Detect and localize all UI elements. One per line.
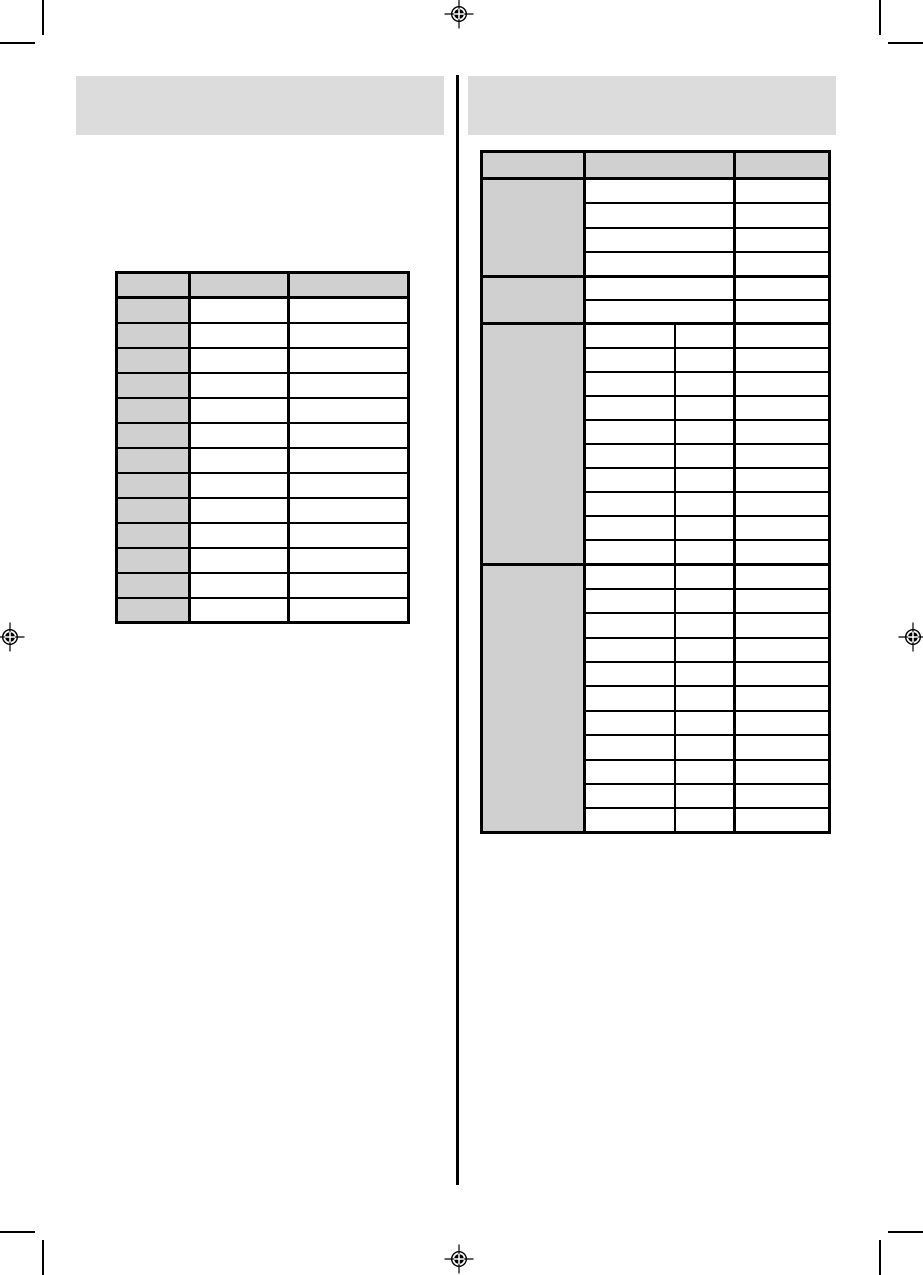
right-table-group-label-cell [482,324,585,565]
right-table-value-cell [735,540,830,564]
trim-mark-bottom-right-horizontal [888,1231,923,1233]
right-table-value-cell [675,348,735,372]
right-table-value-cell [675,589,735,613]
left-table-value-cell [190,498,289,523]
registration-mark-icon [0,622,25,652]
left-table-value-cell [289,448,409,473]
left-table-row [117,448,409,473]
left-table-value-cell [190,548,289,573]
left-table-label-cell [117,473,190,498]
trim-mark-bottom-left-vertical [42,1240,44,1275]
left-table-value-cell [190,523,289,548]
left-table-label-cell [117,598,190,623]
right-table-value-cell [585,396,675,420]
right-table-value-cell [585,735,675,759]
right-table-value-cell [675,711,735,735]
right-table-header-cell [735,152,830,179]
right-table-value-cell [585,808,675,832]
right-table-value-cell [585,468,675,492]
right-table-value-cell [585,760,675,784]
right-table-value-cell [675,760,735,784]
left-table-row [117,423,409,448]
left-table-label-cell [117,498,190,523]
trim-mark-bottom-left-horizontal [0,1231,35,1233]
left-table-row [117,523,409,548]
right-table-value-cell [675,638,735,662]
right-table-value-cell [735,396,830,420]
right-table-value-cell [585,179,735,204]
right-table-value-cell [675,492,735,516]
right-table-value-cell [735,492,830,516]
right-table-header-cell [585,152,735,179]
right-table-value-cell [735,348,830,372]
right-table-value-cell [585,348,675,372]
left-table-header-cell [190,273,289,298]
right-table-header-cell [482,152,585,179]
right-table-value-cell [585,711,675,735]
right-table-value-cell [735,735,830,759]
right-table-value-cell [675,396,735,420]
left-table-row [117,348,409,373]
left-table-label-cell [117,573,190,598]
left-table-label-cell [117,523,190,548]
right-table-value-cell [735,564,830,588]
left-table-label-cell [117,423,190,448]
right-table-value-cell [585,372,675,396]
right-table-value-cell [585,638,675,662]
left-table-label-cell [117,398,190,423]
right-table-value-cell [675,372,735,396]
left-table-value-cell [190,298,289,323]
right-table-value-cell [675,564,735,588]
left-table-row [117,298,409,323]
left-table-value-cell [289,323,409,348]
right-section-header-bar [468,76,836,135]
left-table-label-cell [117,298,190,323]
right-table-value-cell [585,324,675,348]
right-table-value-cell [735,638,830,662]
right-table-value-cell [735,420,830,444]
right-table-row [482,564,830,588]
left-table-value-cell [289,298,409,323]
left-table-value-cell [190,473,289,498]
right-table-group-label-cell [482,179,585,277]
right-table-value-cell [585,662,675,686]
left-table-row [117,598,409,623]
right-table-value-cell [735,179,830,204]
left-table-value-cell [289,348,409,373]
registration-mark-icon [444,1244,474,1274]
left-section-header-bar [76,76,444,135]
left-table-label-cell [117,323,190,348]
left-table-value-cell [289,498,409,523]
left-table-row [117,573,409,598]
right-table-value-cell [735,444,830,468]
left-table-row [117,473,409,498]
left-table-label-cell [117,548,190,573]
left-table-header-cell [117,273,190,298]
right-table-value-cell [585,228,735,253]
right-table-value-cell [585,564,675,588]
right-table-value-cell [735,516,830,540]
left-table-value-cell [289,473,409,498]
left-table-value-cell [190,323,289,348]
left-table-value-cell [190,423,289,448]
right-table-row [482,277,830,301]
registration-mark-icon [444,0,474,29]
left-table-value-cell [289,598,409,623]
left-table-value-cell [289,523,409,548]
right-table-value-cell [735,252,830,277]
left-table-value-cell [190,598,289,623]
right-table-value-cell [735,372,830,396]
right-table-value-cell [675,613,735,637]
right-table-value-cell [735,760,830,784]
right-table-group-label-cell [482,564,585,832]
left-table [115,271,410,624]
right-table-value-cell [675,662,735,686]
right-table-header-row [482,152,830,179]
trim-mark-bottom-right-vertical [879,1240,881,1275]
right-table-value-cell [675,444,735,468]
right-table-value-cell [735,324,830,348]
right-table-row [482,179,830,204]
right-table-value-cell [675,324,735,348]
right-table-value-cell [585,252,735,277]
left-table-row [117,373,409,398]
right-table-value-cell [735,589,830,613]
trim-mark-top-left-vertical [42,0,44,35]
right-table-value-cell [675,516,735,540]
left-table-label-cell [117,373,190,398]
registration-mark-icon [898,622,923,652]
right-table-value-cell [585,203,735,228]
right-table-value-cell [585,589,675,613]
left-table-label-cell [117,448,190,473]
right-table-value-cell [585,277,735,301]
left-table-row [117,548,409,573]
right-table-group-label-cell [482,277,585,324]
right-table-value-cell [675,420,735,444]
left-table-value-cell [190,398,289,423]
right-table-value-cell [675,468,735,492]
left-table-row [117,323,409,348]
right-table-value-cell [675,784,735,808]
left-table-value-cell [190,373,289,398]
left-table-label-cell [117,348,190,373]
right-table-value-cell [735,711,830,735]
right-table-value-cell [585,784,675,808]
right-table-value-cell [585,444,675,468]
trim-mark-top-right-horizontal [888,42,923,44]
left-table-value-cell [190,348,289,373]
right-table-value-cell [735,613,830,637]
right-table-value-cell [735,277,830,301]
document-page [0,0,923,1275]
right-table-value-cell [675,686,735,710]
left-table-header-cell [289,273,409,298]
left-table-value-cell [190,448,289,473]
left-table-row [117,398,409,423]
left-table-value-cell [289,573,409,598]
right-table-value-cell [735,468,830,492]
right-table-value-cell [735,808,830,832]
right-table [480,150,831,834]
right-table-value-cell [585,516,675,540]
right-table-value-cell [735,300,830,324]
left-table-value-cell [190,573,289,598]
right-table-value-cell [675,735,735,759]
left-table-row [117,498,409,523]
left-table-value-cell [289,423,409,448]
right-table-value-cell [585,613,675,637]
trim-mark-top-left-horizontal [0,42,35,44]
right-table-value-cell [585,300,735,324]
trim-mark-top-right-vertical [879,0,881,35]
right-table-value-cell [735,784,830,808]
right-table-value-cell [735,686,830,710]
right-table-value-cell [675,808,735,832]
right-table-row [482,324,830,348]
right-table-value-cell [675,540,735,564]
right-table-value-cell [735,662,830,686]
right-table-value-cell [735,228,830,253]
left-table-value-cell [289,398,409,423]
right-table-value-cell [585,686,675,710]
left-table-header-row [117,273,409,298]
left-table-value-cell [289,548,409,573]
right-table-value-cell [585,492,675,516]
right-table-value-cell [585,540,675,564]
left-table-value-cell [289,373,409,398]
right-table-value-cell [735,203,830,228]
right-table-value-cell [585,420,675,444]
column-divider-line [456,75,459,1185]
